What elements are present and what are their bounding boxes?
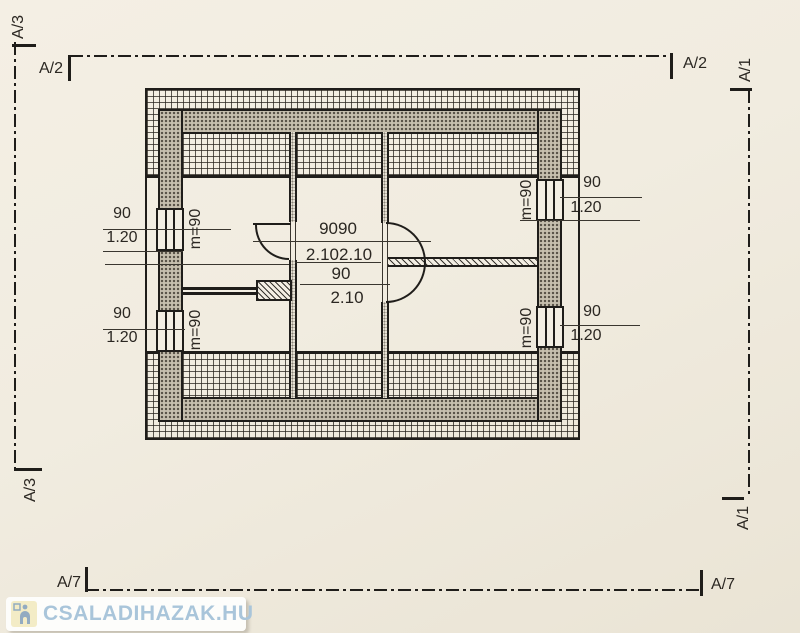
section-tick-a2-left <box>68 55 71 81</box>
dimension-line <box>253 241 431 242</box>
house-icon <box>11 601 37 627</box>
parapet-height-label: m=90 <box>519 178 535 222</box>
window-height-label: 1.20 <box>98 230 146 246</box>
section-label-a3-top: A/3 <box>11 10 27 44</box>
window-height-label: 1.20 <box>562 328 610 344</box>
section-tick-a7-right <box>700 570 703 596</box>
door-height-label: 2.10 <box>327 290 367 306</box>
dimension-line <box>560 197 642 198</box>
section-line-a7 <box>86 589 702 591</box>
dimension-line <box>300 284 390 285</box>
section-label-a1-bottom: A/1 <box>736 501 752 535</box>
section-tick-a2-right <box>670 53 673 79</box>
low-headroom-hatch-bottom <box>147 351 578 438</box>
window-width-label: 90 <box>102 306 142 322</box>
window-height-label: 1.20 <box>98 330 146 346</box>
window-width-label: 90 <box>102 206 142 222</box>
parapet-height-label: m=90 <box>519 306 535 350</box>
dimension-line <box>105 264 289 265</box>
partition-wall-horizontal-left <box>183 287 257 295</box>
window-width-label: 90 <box>572 175 612 191</box>
exterior-wall-right <box>537 109 562 422</box>
section-label-a1-top: A/1 <box>738 53 754 87</box>
window-left-bottom <box>156 310 184 352</box>
dimension-line <box>103 251 183 252</box>
exterior-wall-bottom <box>158 397 562 422</box>
door-widths-label: 9090 <box>303 221 373 237</box>
section-tick-a3-top <box>12 44 36 47</box>
section-line-a1 <box>748 90 750 498</box>
section-label-a2-right: A/2 <box>680 56 710 72</box>
section-label-a7-left: A/7 <box>54 575 84 591</box>
exterior-wall-top <box>158 109 562 134</box>
chimney-block <box>256 280 292 301</box>
section-tick-a1-top <box>730 88 752 91</box>
section-line-a3 <box>14 42 16 468</box>
exterior-wall-left <box>158 109 183 422</box>
door-heights-label: 2.102.10 <box>299 247 379 263</box>
window-width-label: 90 <box>572 304 612 320</box>
section-line-a2 <box>70 55 672 57</box>
low-headroom-hatch-top <box>147 90 578 178</box>
window-right-top <box>536 179 564 221</box>
dimension-line <box>560 325 640 326</box>
partition-wall-right-upper <box>381 132 389 223</box>
section-tick-a1-bottom <box>722 497 744 500</box>
window-frame <box>165 311 175 351</box>
watermark-text: CSALADIHAZAK.HU <box>43 602 254 626</box>
floor-plan-page: A/3 A/3 A/2 A/2 A/1 A/1 A/7 A/7 <box>0 0 800 633</box>
dimension-line <box>520 220 640 221</box>
window-right-bottom <box>536 306 564 348</box>
window-height-label: 1.20 <box>562 200 610 216</box>
parapet-height-label: m=90 <box>188 308 204 352</box>
section-label-a2-left: A/2 <box>36 61 66 77</box>
partition-wall-left-upper <box>289 132 297 222</box>
partition-wall-right-lower <box>381 302 389 398</box>
window-frame <box>545 180 555 220</box>
door-width-label: 90 <box>321 266 361 282</box>
section-tick-a3-bottom <box>14 468 42 471</box>
parapet-height-label: m=90 <box>188 207 204 251</box>
section-label-a3-bottom: A/3 <box>23 473 39 507</box>
window-frame <box>545 307 555 347</box>
section-tick-a7-left <box>85 567 88 592</box>
section-label-a7-right: A/7 <box>708 577 738 593</box>
watermark: CSALADIHAZAK.HU <box>6 597 246 631</box>
